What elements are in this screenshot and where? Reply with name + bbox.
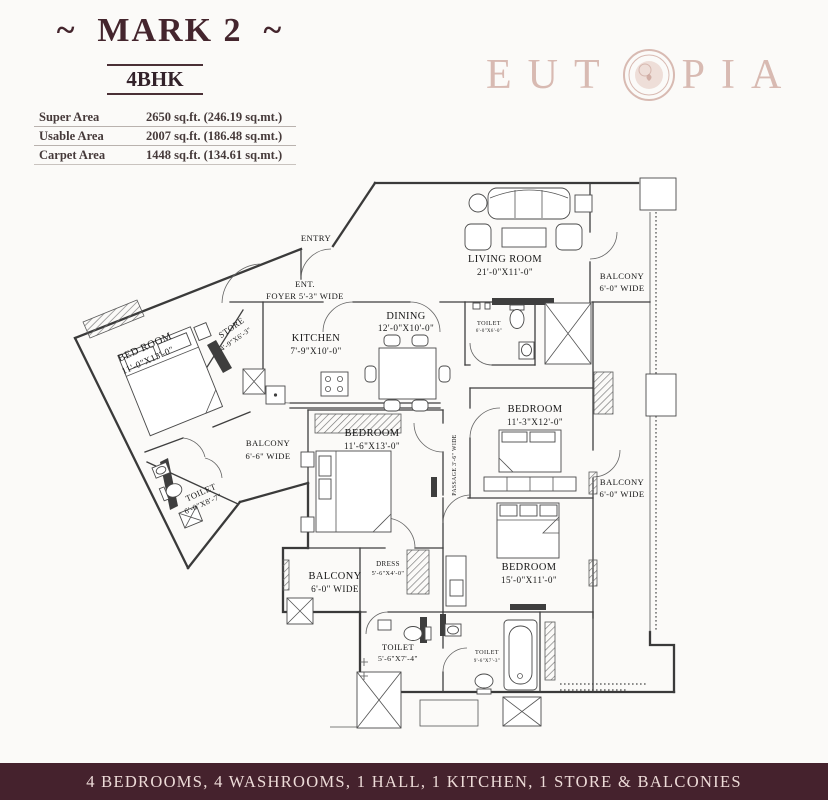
label-bedroom4-dim: 15'-0"X11'-0" <box>501 575 557 585</box>
bed <box>301 451 391 532</box>
label-balcony-w-dim: 6'-6" WIDE <box>246 451 291 461</box>
plan-title: ~ MARK 2 ~ <box>30 12 310 50</box>
label-bedroom2: BEDROOM <box>345 428 400 439</box>
label-bedroom3: BEDROOM <box>508 404 563 415</box>
wc <box>510 310 524 329</box>
armchair <box>556 224 582 250</box>
bed <box>446 503 559 610</box>
entry-door-arc <box>301 249 331 279</box>
floor-plan-page: ~ MARK 2 ~ 4BHK Super Area 2650 sq.ft. (… <box>0 0 828 800</box>
planter-hatch <box>594 372 613 414</box>
armchair <box>465 224 491 250</box>
area-value: 2007 sq.ft. (186.48 sq.mt.) <box>146 129 296 144</box>
unit-type-badge: 4BHK <box>107 64 203 95</box>
label-passage: PASSAGE 3'-6" WIDE <box>452 434 458 496</box>
label-toilet-lv-dim: 6'-0"X6'-0" <box>476 329 502 334</box>
label-living-room-dim: 21'-0"X11'-0" <box>477 267 533 277</box>
side-table-round <box>469 194 487 212</box>
label-bedroom3-dim: 11'-3"X12'-0" <box>507 417 563 427</box>
chair <box>412 335 428 346</box>
label-kitchen: KITCHEN <box>292 333 340 344</box>
brand-o-emblem-icon <box>620 46 678 104</box>
bed <box>118 321 237 436</box>
brand-text-left: EUT <box>486 51 616 99</box>
label-foyer: ENT. <box>295 279 315 289</box>
label-living-room: LIVING ROOM <box>468 254 542 265</box>
shaft-x-box <box>287 598 313 624</box>
label-dress-dim: 5'-6"X4'-0" <box>372 570 405 577</box>
console <box>510 604 546 610</box>
label-balcony-bl: BALCONY <box>308 571 361 582</box>
window-hatch <box>283 560 289 590</box>
room-labels: ENTRY ENT. FOYER 5'-3" WIDE LIVING ROOM … <box>116 233 644 664</box>
label-foyer-dim: FOYER 5'-3" WIDE <box>266 291 344 301</box>
label-balcony-bl-dim: 6'-0" WIDE <box>311 584 359 594</box>
chair <box>384 400 400 411</box>
side-table <box>194 323 211 341</box>
shaft-x-box <box>503 697 541 726</box>
label-dining: DINING <box>386 311 425 322</box>
label-bedroom4: BEDROOM <box>502 562 557 573</box>
coffee-table <box>502 228 546 247</box>
bed <box>484 430 576 491</box>
chair <box>439 366 450 382</box>
toilet3-fixtures <box>445 620 537 694</box>
table-row: Super Area 2650 sq.ft. (246.19 sq.mt.) <box>34 108 296 127</box>
table-row: Usable Area 2007 sq.ft. (186.48 sq.mt.) <box>34 127 296 146</box>
wardrobe-hatch <box>407 550 429 594</box>
label-toilet3: TOILET <box>475 649 499 656</box>
area-value: 2650 sq.ft. (246.19 sq.mt.) <box>146 110 296 125</box>
area-label: Usable Area <box>34 129 146 144</box>
side-table-square <box>575 195 592 212</box>
chair <box>365 366 376 382</box>
wardrobe-hatch <box>83 300 144 338</box>
brand-text-right: PIA <box>682 51 798 99</box>
label-dining-dim: 12'-0"X10'-0" <box>378 323 434 333</box>
brand-logo: EUT PIA <box>486 46 797 104</box>
side-table <box>301 517 314 532</box>
area-table: Super Area 2650 sq.ft. (246.19 sq.mt.) U… <box>34 108 296 165</box>
label-balcony-tr-dim: 6'-0" WIDE <box>600 283 645 293</box>
window-hatch <box>545 622 555 680</box>
floor-plan: ENTRY ENT. FOYER 5'-3" WIDE LIVING ROOM … <box>55 160 780 765</box>
wc-tank <box>477 689 491 694</box>
window-hatch <box>589 472 597 494</box>
label-balcony-tr: BALCONY <box>600 271 644 281</box>
summary-text: 4 BEDROOMS, 4 WASHROOMS, 1 HALL, 1 KITCH… <box>86 772 742 792</box>
label-balcony-mr-dim: 6'-0" WIDE <box>600 489 645 499</box>
area-label: Super Area <box>34 110 146 125</box>
wc-tank <box>425 627 431 640</box>
label-toilet3-dim: 9'-6"X7'-3" <box>474 659 500 664</box>
label-toilet2-dim: 5'-6"X7'-4" <box>378 654 418 663</box>
stove <box>321 372 348 396</box>
label-balcony-mr: BALCONY <box>600 477 644 487</box>
label-dress: DRESS <box>376 560 400 568</box>
shaft-x-box <box>545 303 591 364</box>
window-hatch <box>589 560 597 586</box>
shaft-x-box <box>357 672 401 728</box>
chair <box>450 580 463 596</box>
washbasin <box>378 620 391 630</box>
wc <box>404 627 422 641</box>
summary-bar: 4 BEDROOMS, 4 WASHROOMS, 1 HALL, 1 KITCH… <box>0 763 828 800</box>
chair <box>384 335 400 346</box>
side-table <box>301 452 314 467</box>
kitchen-fixtures <box>266 372 348 404</box>
chair <box>412 400 428 411</box>
label-bedroom2-dim: 11'-6"X13'-0" <box>344 441 400 451</box>
wc <box>475 674 493 688</box>
dining-table <box>365 335 450 411</box>
label-toilet2: TOILET <box>382 642 415 652</box>
sofa <box>465 188 592 250</box>
label-kitchen-dim: 7'-9"X10'-0" <box>290 346 341 356</box>
label-toilet-lv: TOILET <box>477 320 501 327</box>
label-entry: ENTRY <box>301 233 331 243</box>
shaft-x-box <box>243 369 265 394</box>
label-balcony-w: BALCONY <box>246 438 290 448</box>
